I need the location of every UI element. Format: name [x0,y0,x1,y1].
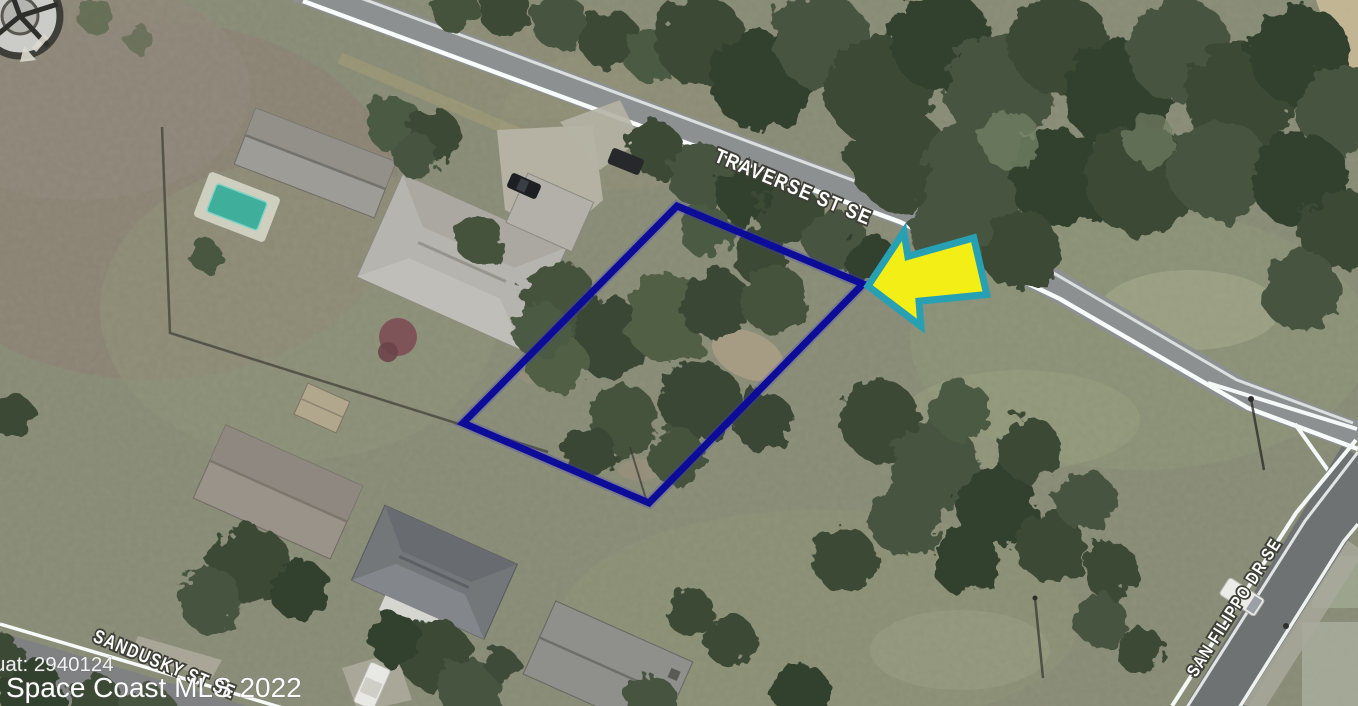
aerial-photo-canvas: TRAVERSE ST SE SANDUSKY ST SE SAN FILIPP… [0,0,1358,706]
mailbox [1283,623,1289,629]
watermark-mls: Space Coast MLS 2022 [6,672,302,703]
aerial-photo: TRAVERSE ST SE SANDUSKY ST SE SAN FILIPP… [0,0,1358,706]
